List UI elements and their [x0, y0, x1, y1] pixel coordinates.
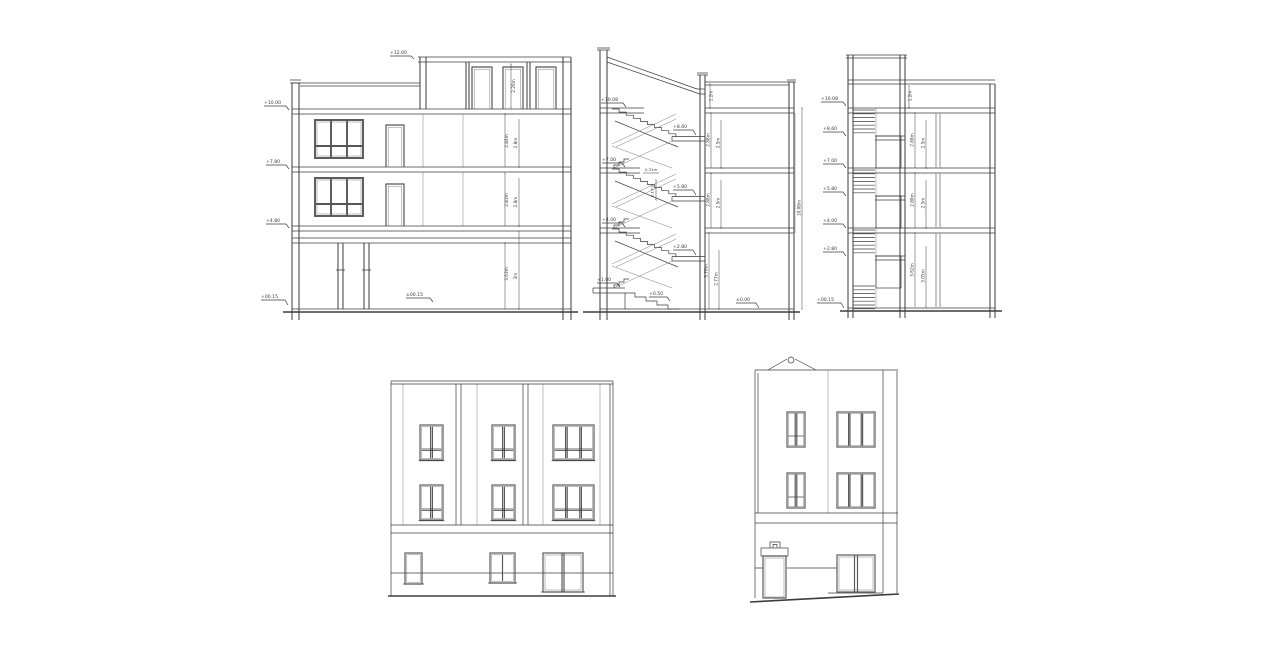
level-label: +00.15 — [817, 297, 834, 303]
stair-tower-section: +10.08 +8.60 +7.00 +5.80 +4.00 +2.80 +00… — [817, 55, 1002, 318]
dim-label: 3.05m — [921, 269, 926, 282]
dim-label: 1.2m — [709, 91, 714, 102]
dim-label: 3m — [513, 273, 518, 280]
level-label: ±0.00 — [736, 297, 750, 303]
dim-label: 3.63m — [504, 267, 509, 280]
side-elevation — [750, 357, 899, 602]
level-label: +10.08 — [601, 97, 618, 103]
level-label: +1.00 — [597, 277, 611, 283]
level-label: +7.00 — [823, 158, 837, 164]
front-elevation — [388, 381, 616, 596]
dim-label: 2.5m — [716, 138, 721, 149]
dim-label: 2.77m — [714, 272, 719, 285]
dim-label: 2.8m — [513, 197, 518, 208]
dim-label: 2.88m — [706, 133, 711, 146]
dim-label: 2.88m — [910, 193, 915, 206]
dim-label: 0.31m — [645, 167, 657, 172]
door-crown — [770, 542, 780, 548]
dim-label: 2.84m — [504, 134, 509, 147]
gable-ornament — [768, 359, 816, 370]
staircase-section: +10.08 +7.00 +4.00 +1.00 +8.60 +5.80 +2.… — [583, 48, 802, 320]
level-label: +4.00 — [602, 217, 616, 223]
dim-label: 10.08m — [797, 200, 802, 216]
dim-label: 2.20m — [511, 79, 516, 92]
drawing-sheet: +12.60 +10.00 +7.80 +4.80 +00.15 ±00.15 … — [0, 0, 1280, 650]
level-label: +0.50 — [649, 291, 663, 297]
level-label: +8.60 — [823, 126, 837, 132]
dim-label: 2.88m — [910, 133, 915, 146]
level-label: +10.08 — [821, 96, 838, 102]
architectural-drawing: +12.60 +10.00 +7.80 +4.80 +00.15 ±00.15 … — [0, 0, 1280, 650]
level-label: +8.60 — [673, 124, 687, 130]
level-label: +00.15 — [261, 294, 278, 300]
level-label: +7.80 — [266, 159, 280, 165]
level-label: +4.80 — [266, 218, 280, 224]
level-label: +4.00 — [823, 218, 837, 224]
level-label: +2.80 — [673, 244, 687, 250]
level-label: +12.60 — [390, 50, 407, 56]
dim-label: 2.8m — [513, 138, 518, 149]
level-label: +7.00 — [602, 157, 616, 163]
level-label: +5.80 — [823, 186, 837, 192]
dim-label: 2.83m — [504, 193, 509, 206]
dim-label: 1.2m — [908, 91, 913, 102]
building-cross-section: +12.60 +10.00 +7.80 +4.80 +00.15 ±00.15 … — [261, 50, 578, 320]
dim-label: 3.62m — [910, 263, 915, 276]
level-label: +2.80 — [823, 246, 837, 252]
dim-label: 0.17m — [650, 185, 655, 197]
dim-label: 2.88m — [706, 193, 711, 206]
dim-label: 2.5m — [716, 198, 721, 209]
level-label: +5.80 — [673, 184, 687, 190]
level-label: +10.00 — [264, 100, 281, 106]
level-label: ±00.15 — [406, 292, 423, 298]
dim-label: 2.5m — [921, 138, 926, 149]
dim-label: 2.5m — [921, 198, 926, 209]
dim-label: 3.76m — [704, 264, 709, 277]
